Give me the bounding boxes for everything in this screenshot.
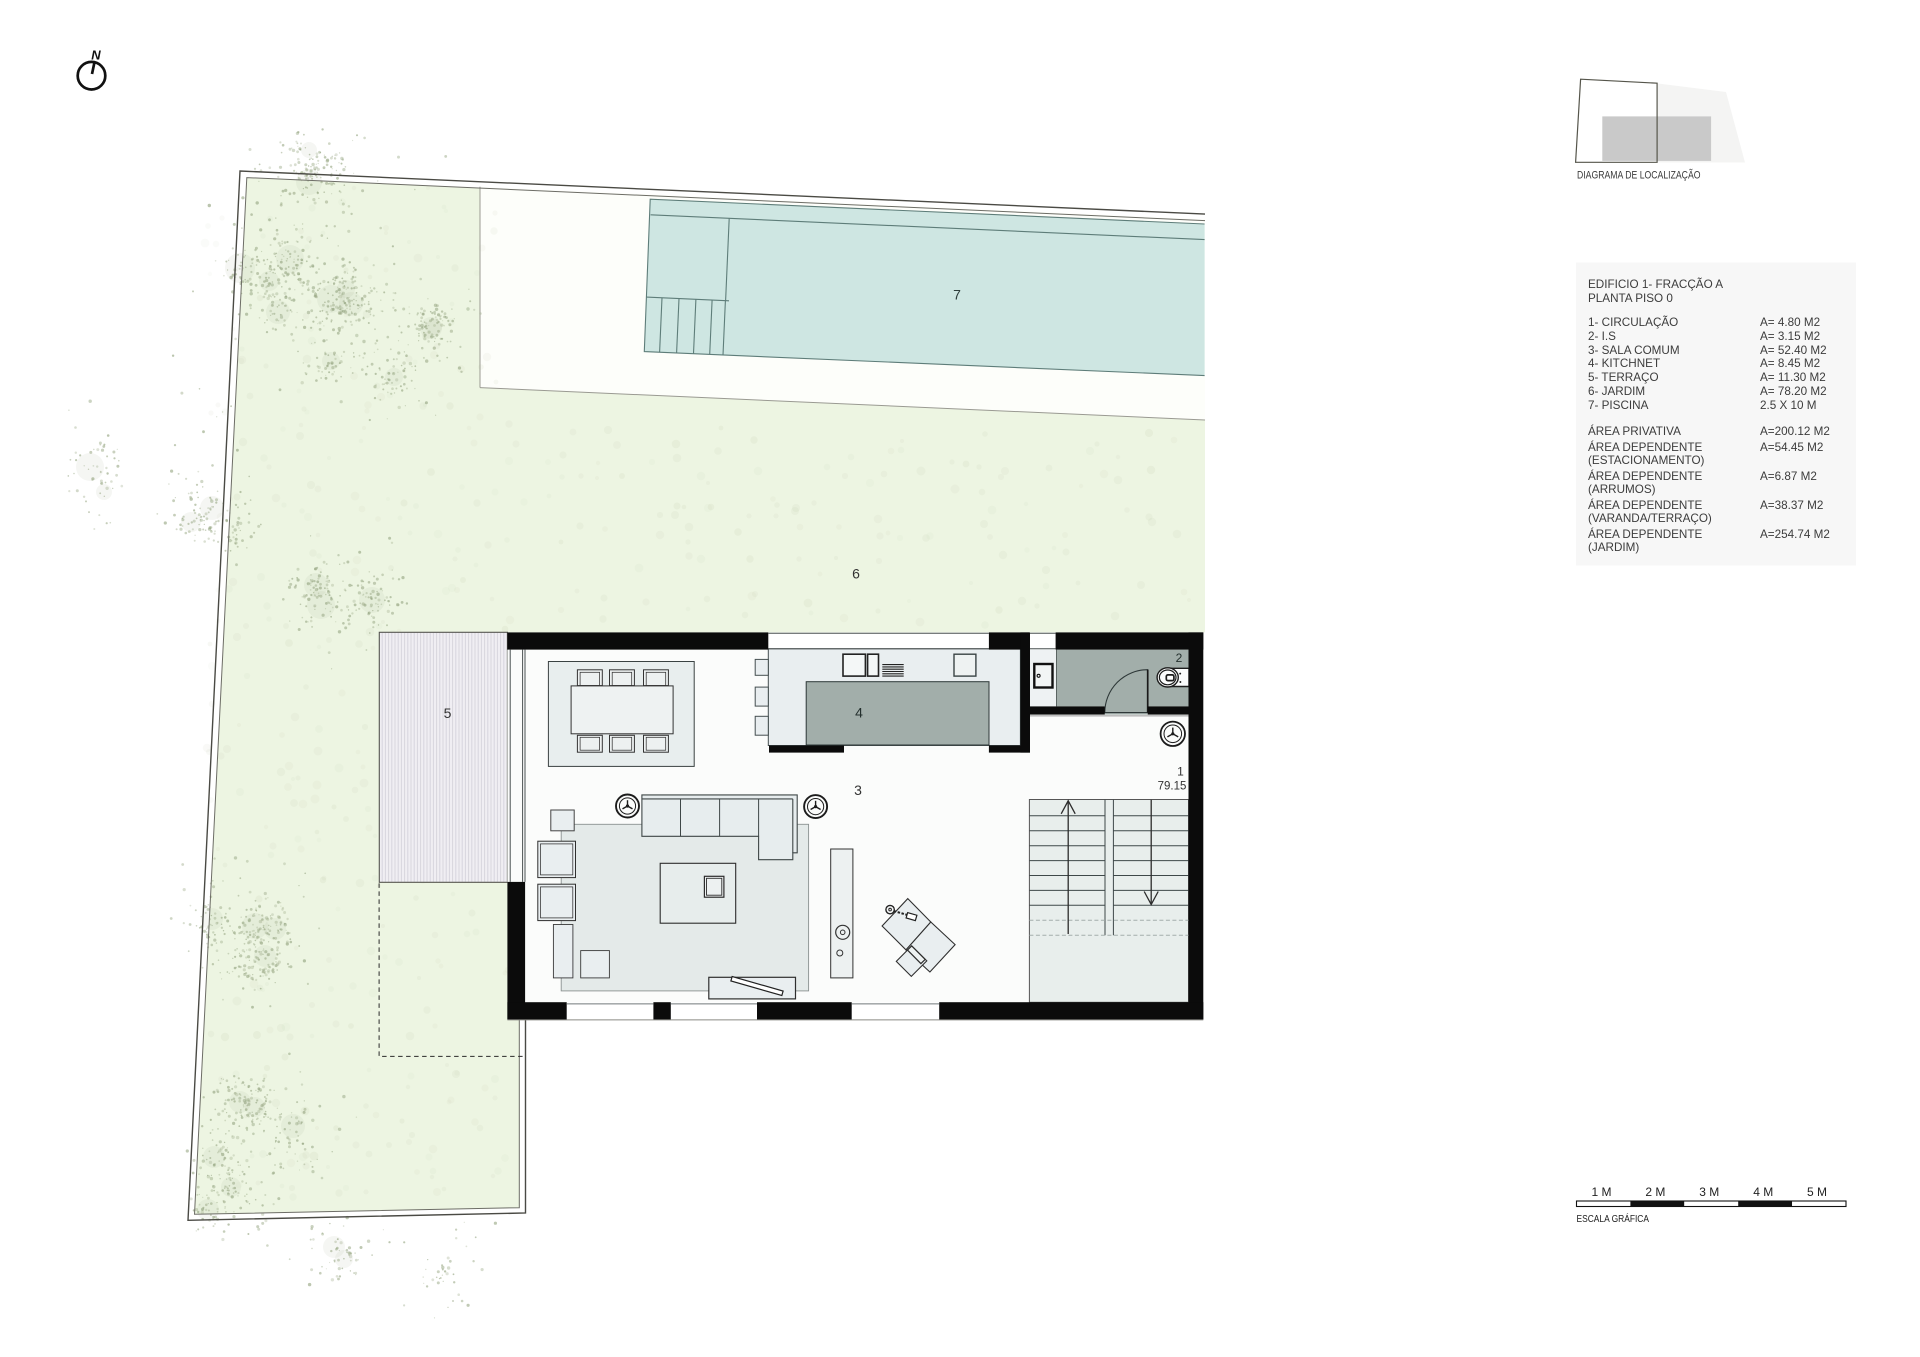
svg-text:1 M: 1 M — [1591, 1185, 1611, 1199]
svg-text:1: 1 — [1177, 764, 1184, 778]
svg-text:ESCALA GRÁFICA: ESCALA GRÁFICA — [1577, 1212, 1650, 1225]
svg-text:6: 6 — [852, 566, 860, 582]
svg-text:(VARANDA/TERRAÇO): (VARANDA/TERRAÇO) — [1588, 512, 1712, 525]
svg-text:ÁREA PRIVATIVA: ÁREA PRIVATIVA — [1588, 425, 1681, 438]
svg-text:4: 4 — [855, 705, 863, 721]
svg-text:(JARDIM): (JARDIM) — [1588, 541, 1639, 554]
svg-text:2.5 X 10 M: 2.5 X 10 M — [1760, 399, 1817, 412]
svg-text:3 M: 3 M — [1699, 1185, 1719, 1199]
svg-text:N: N — [91, 48, 101, 63]
svg-text:5- TERRAÇO: 5- TERRAÇO — [1588, 371, 1659, 384]
svg-text:(ARRUMOS): (ARRUMOS) — [1588, 483, 1656, 496]
svg-text:A=200.12 M2: A=200.12 M2 — [1760, 425, 1830, 438]
svg-text:5: 5 — [444, 705, 452, 721]
svg-text:ÁREA DEPENDENTE: ÁREA DEPENDENTE — [1588, 470, 1703, 483]
svg-text:2- I.S: 2- I.S — [1588, 330, 1616, 343]
svg-text:4- KITCHNET: 4- KITCHNET — [1588, 357, 1660, 370]
svg-text:A= 52.40 M2: A= 52.40 M2 — [1760, 344, 1827, 357]
svg-text:7- PISCINA: 7- PISCINA — [1588, 399, 1649, 412]
svg-text:ÁREA DEPENDENTE: ÁREA DEPENDENTE — [1588, 499, 1703, 512]
svg-text:(ESTACIONAMENTO): (ESTACIONAMENTO) — [1588, 454, 1705, 467]
svg-text:6- JARDIM: 6- JARDIM — [1588, 385, 1645, 398]
svg-text:ÁREA DEPENDENTE: ÁREA DEPENDENTE — [1588, 441, 1703, 454]
svg-text:2 M: 2 M — [1645, 1185, 1665, 1199]
svg-text:3- SALA COMUM: 3- SALA COMUM — [1588, 344, 1680, 357]
svg-text:A=6.87 M2: A=6.87 M2 — [1760, 470, 1817, 483]
svg-text:A=54.45 M2: A=54.45 M2 — [1760, 441, 1823, 454]
svg-text:A= 78.20 M2: A= 78.20 M2 — [1760, 385, 1827, 398]
svg-text:PLANTA PISO 0: PLANTA PISO 0 — [1588, 292, 1673, 305]
svg-text:EDIFICIO 1- FRACÇÃO A: EDIFICIO 1- FRACÇÃO A — [1588, 278, 1723, 291]
svg-text:5 M: 5 M — [1807, 1185, 1827, 1199]
svg-text:1- CIRCULAÇÃO: 1- CIRCULAÇÃO — [1588, 316, 1678, 329]
svg-text:A= 8.45 M2: A= 8.45 M2 — [1760, 357, 1820, 370]
svg-text:A= 11.30 M2: A= 11.30 M2 — [1760, 371, 1826, 384]
svg-text:3: 3 — [854, 782, 862, 798]
svg-text:ÁREA DEPENDENTE: ÁREA DEPENDENTE — [1588, 528, 1703, 541]
svg-text:2: 2 — [1176, 651, 1183, 665]
svg-text:4 M: 4 M — [1753, 1185, 1773, 1199]
svg-text:A=254.74 M2: A=254.74 M2 — [1760, 528, 1830, 541]
svg-text:7: 7 — [953, 287, 961, 303]
svg-text:A= 4.80 M2: A= 4.80 M2 — [1760, 316, 1820, 329]
svg-text:A=38.37 M2: A=38.37 M2 — [1760, 499, 1823, 512]
svg-text:79.15: 79.15 — [1158, 780, 1187, 792]
svg-text:A= 3.15 M2: A= 3.15 M2 — [1760, 330, 1820, 343]
svg-text:DIAGRAMA DE LOCALIZAÇÃO: DIAGRAMA DE LOCALIZAÇÃO — [1577, 169, 1701, 182]
